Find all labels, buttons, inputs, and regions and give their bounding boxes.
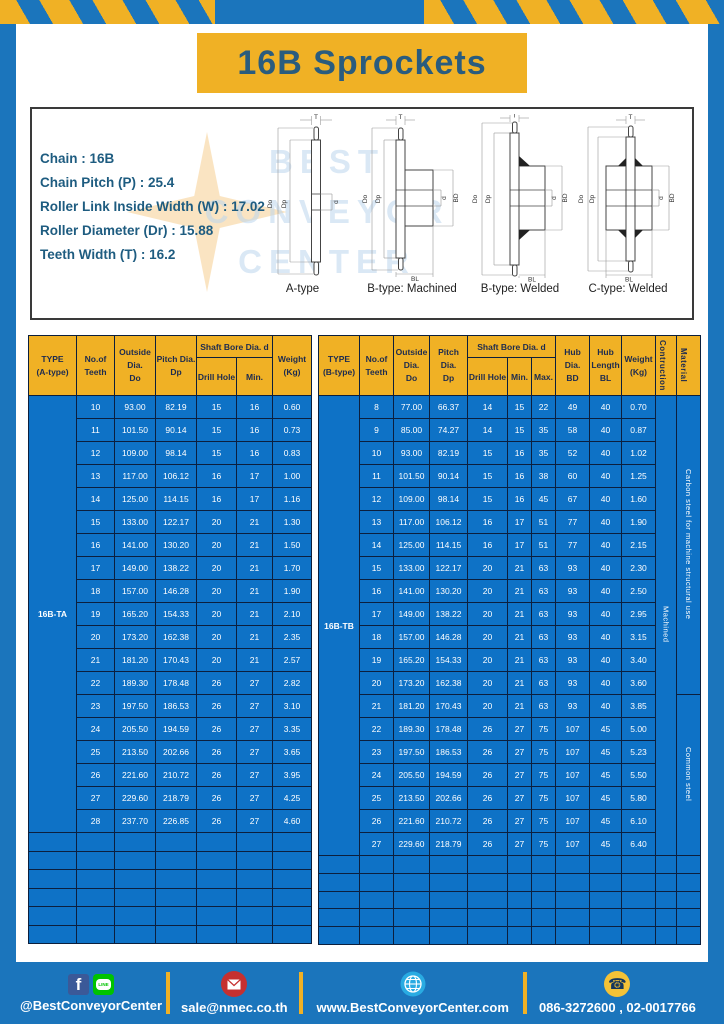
table-row: 25213.50202.66262775107455.80 [319, 787, 701, 810]
table-cell: 2.10 [273, 603, 312, 626]
table-cell: 93 [556, 557, 590, 580]
table-cell: 1.90 [273, 580, 312, 603]
table-cell: 0.87 [622, 419, 656, 442]
table-cell: 221.60 [115, 764, 156, 787]
table-cell: 63 [532, 649, 556, 672]
table-cell: 17 [508, 534, 532, 557]
table-cell: 173.20 [115, 626, 156, 649]
dim-label-d: d [551, 196, 558, 200]
dim-label-do: Do [578, 194, 585, 203]
table-cell: 19 [77, 603, 115, 626]
empty-cell [273, 907, 312, 926]
table-cell: 26 [360, 810, 394, 833]
table-cell: 93.00 [394, 442, 430, 465]
table-cell: 20 [197, 603, 237, 626]
table-cell: 16 [197, 488, 237, 511]
table-cell: 237.70 [115, 810, 156, 833]
table-cell: 26 [197, 695, 237, 718]
table-cell: 40 [590, 511, 622, 534]
table-row: 27229.60218.79262775107456.40 [319, 833, 701, 856]
footer-social-item: f LINE @BestConveyorCenter [16, 974, 166, 1013]
table-cell: 210.72 [430, 810, 468, 833]
table-cell: 0.70 [622, 396, 656, 419]
empty-cell [532, 856, 556, 874]
table-cell: 5.00 [622, 718, 656, 741]
empty-cell [394, 873, 430, 891]
empty-cell [430, 909, 468, 927]
table-cell: 16 [237, 396, 273, 419]
table-cell: 23 [77, 695, 115, 718]
table-row: 13117.00106.1216175177401.90 [319, 511, 701, 534]
table-cell: 3.95 [273, 764, 312, 787]
table-cell: 40 [590, 442, 622, 465]
empty-cell [556, 891, 590, 909]
table-cell: 21 [508, 626, 532, 649]
table-row: 21181.20170.4320216393403.85Common steel [319, 695, 701, 718]
table-cell: 6.40 [622, 833, 656, 856]
spec-line: Roller Link Inside Width (W) : 17.02 [40, 199, 265, 214]
table-cell: 21 [508, 672, 532, 695]
empty-cell [394, 927, 430, 945]
table-cell: 109.00 [394, 488, 430, 511]
table-cell: 20 [468, 557, 508, 580]
table-cell: 12 [360, 488, 394, 511]
empty-cell [468, 856, 508, 874]
empty-cell [319, 909, 360, 927]
table-cell: 26 [197, 810, 237, 833]
table-cell: 12 [77, 442, 115, 465]
table-cell: 19 [360, 649, 394, 672]
table-cell: 20 [197, 557, 237, 580]
table-cell: 20 [468, 603, 508, 626]
empty-cell [532, 927, 556, 945]
empty-cell [556, 873, 590, 891]
table-cell: 21 [360, 695, 394, 718]
col-header-outside-dia: OutsideDia.Do [394, 336, 430, 396]
diagram-caption: A-type [286, 283, 319, 295]
table-cell: 27 [508, 833, 532, 856]
empty-cell [590, 873, 622, 891]
footer-phone-item: ☎ 086-3272600 , 02-0017766 [527, 971, 708, 1015]
table-cell: 82.19 [430, 442, 468, 465]
empty-cell [656, 873, 677, 891]
table-cell: 98.14 [156, 442, 197, 465]
col-header-teeth: No.ofTeeth [360, 336, 394, 396]
table-cell: 25 [360, 787, 394, 810]
table-cell: 75 [532, 833, 556, 856]
right-border-bar [708, 0, 724, 1024]
empty-cell [677, 891, 701, 909]
footer-email-item: sale@nmec.co.th [170, 971, 299, 1015]
empty-cell [394, 891, 430, 909]
table-row: 22189.30178.48262775107455.00 [319, 718, 701, 741]
empty-cell [656, 856, 677, 874]
empty-cell [29, 888, 77, 907]
table-cell: 16 [77, 534, 115, 557]
table-cell: 2.35 [273, 626, 312, 649]
col-header-outside-dia: OutsideDia.Do [115, 336, 156, 396]
table-cell: 133.00 [115, 511, 156, 534]
empty-cell [77, 907, 115, 926]
table-row: 20173.20162.3820216393403.60 [319, 672, 701, 695]
empty-cell [29, 851, 77, 870]
table-cell: 205.50 [394, 764, 430, 787]
table-row: 14125.00114.1516175177402.15 [319, 534, 701, 557]
table-cell: 21 [508, 557, 532, 580]
table-row: 16B-TA1093.0082.1915160.60 [29, 396, 312, 419]
empty-cell [29, 833, 77, 852]
table-cell: 15 [197, 419, 237, 442]
table-cell: 178.48 [156, 672, 197, 695]
empty-cell [508, 909, 532, 927]
catalog-page: 16B Sprockets BEST CONVEYOR CENTER Chain… [0, 0, 724, 1024]
table-cell: 2.82 [273, 672, 312, 695]
table-cell: 226.85 [156, 810, 197, 833]
table-cell: 1.02 [622, 442, 656, 465]
diagram-caption: C-type: Welded [588, 283, 667, 295]
table-cell: 45 [590, 718, 622, 741]
table-cell: 1.25 [622, 465, 656, 488]
table-cell: 45 [532, 488, 556, 511]
table-cell: 35 [532, 442, 556, 465]
table-cell: 40 [590, 672, 622, 695]
table-cell: 154.33 [430, 649, 468, 672]
top-border-bar [0, 0, 724, 24]
table-cell: 51 [532, 534, 556, 557]
table-cell: 157.00 [394, 626, 430, 649]
table-cell: 205.50 [115, 718, 156, 741]
empty-cell [77, 870, 115, 889]
table-cell: 18 [77, 580, 115, 603]
table-cell: 130.20 [430, 580, 468, 603]
table-cell: 186.53 [430, 741, 468, 764]
material-cell: Carbon steel for machine structural use [677, 396, 701, 695]
empty-cell [197, 907, 237, 926]
table-cell: 93 [556, 672, 590, 695]
table-cell: 74.27 [430, 419, 468, 442]
table-cell: 93 [556, 603, 590, 626]
empty-cell [430, 873, 468, 891]
table-cell: 2.95 [622, 603, 656, 626]
table-cell: 1.00 [273, 465, 312, 488]
table-cell: 162.38 [156, 626, 197, 649]
table-cell: 154.33 [156, 603, 197, 626]
empty-cell [237, 851, 273, 870]
table-cell: 25 [77, 741, 115, 764]
email-icon [221, 971, 247, 997]
empty-cell [468, 927, 508, 945]
empty-cell [656, 927, 677, 945]
spec-diagram-box: BEST CONVEYOR CENTER Chain : 16B Chain P… [30, 107, 694, 320]
table-cell: 20 [77, 626, 115, 649]
empty-row [29, 851, 312, 870]
empty-cell [360, 927, 394, 945]
table-row: 1093.0082.1915163552401.02 [319, 442, 701, 465]
table-cell: 17 [237, 465, 273, 488]
empty-cell [29, 925, 77, 944]
table-row: 18157.00146.2820216393403.15 [319, 626, 701, 649]
table-cell: 52 [556, 442, 590, 465]
empty-cell [532, 873, 556, 891]
col-header-hub-dia: Hub Dia.BD [556, 336, 590, 396]
table-cell: 16 [237, 419, 273, 442]
col-header-weight: Weight(Kg) [622, 336, 656, 396]
table-cell: 9 [360, 419, 394, 442]
table-cell: 14 [360, 534, 394, 557]
type-b-cell: 16B-TB [319, 396, 360, 856]
table-cell: 2.15 [622, 534, 656, 557]
table-cell: 1.16 [273, 488, 312, 511]
table-cell: 67 [556, 488, 590, 511]
table-cell: 13 [360, 511, 394, 534]
dim-label-bd: BD [669, 193, 676, 202]
table-cell: 14 [468, 419, 508, 442]
empty-cell [273, 833, 312, 852]
table-cell: 93 [556, 580, 590, 603]
table-cell: 21 [508, 603, 532, 626]
empty-cell [394, 856, 430, 874]
empty-cell [590, 909, 622, 927]
table-cell: 17 [508, 511, 532, 534]
dim-label-do: Do [362, 194, 369, 203]
table-cell: 75 [532, 810, 556, 833]
col-header-construction: Contruction [656, 336, 677, 396]
table-cell: 20 [468, 626, 508, 649]
dim-label-bd: BD [562, 193, 569, 202]
empty-cell [273, 888, 312, 907]
table-cell: 77.00 [394, 396, 430, 419]
table-cell: 3.85 [622, 695, 656, 718]
table-cell: 194.59 [156, 718, 197, 741]
table-row: 23197.50186.53262775107455.23 [319, 741, 701, 764]
dim-label-t: T [314, 114, 318, 121]
table-cell: 45 [590, 833, 622, 856]
table-cell: 45 [590, 741, 622, 764]
table-cell: 27 [237, 718, 273, 741]
phone-icon: ☎ [604, 971, 630, 997]
dim-label-t: T [629, 114, 633, 121]
table-cell: 26 [197, 741, 237, 764]
table-cell: 40 [590, 488, 622, 511]
dim-label-t: T [513, 114, 517, 120]
table-cell: 117.00 [394, 511, 430, 534]
sprocket-table-a-type: TYPE(A-type) No.ofTeeth OutsideDia.Do Pi… [28, 335, 312, 944]
table-cell: 15 [77, 511, 115, 534]
table-cell: 3.10 [273, 695, 312, 718]
table-cell: 15 [508, 396, 532, 419]
table-cell: 21 [508, 580, 532, 603]
table-cell: 109.00 [115, 442, 156, 465]
table-cell: 1.30 [273, 511, 312, 534]
table-cell: 60 [556, 465, 590, 488]
empty-cell [77, 888, 115, 907]
table-cell: 35 [532, 419, 556, 442]
empty-cell [532, 891, 556, 909]
table-cell: 17 [360, 603, 394, 626]
table-cell: 27 [237, 764, 273, 787]
table-cell: 189.30 [115, 672, 156, 695]
empty-cell [156, 907, 197, 926]
table-cell: 27 [360, 833, 394, 856]
table-cell: 107 [556, 787, 590, 810]
table-cell: 20 [197, 511, 237, 534]
table-cell: 85.00 [394, 419, 430, 442]
table-cell: 63 [532, 557, 556, 580]
col-header-max: Max. [532, 358, 556, 396]
table-cell: 75 [532, 764, 556, 787]
table-cell: 26 [468, 810, 508, 833]
table-cell: 221.60 [394, 810, 430, 833]
table-cell: 2.30 [622, 557, 656, 580]
table-cell: 3.35 [273, 718, 312, 741]
empty-cell [237, 907, 273, 926]
table-cell: 20 [468, 695, 508, 718]
empty-cell [468, 873, 508, 891]
page-title: 16B Sprockets [237, 44, 486, 83]
table-cell: 229.60 [394, 833, 430, 856]
website-url: www.BestConveyorCenter.com [317, 1000, 509, 1015]
empty-cell [430, 891, 468, 909]
table-cell: 13 [77, 465, 115, 488]
social-handle: @BestConveyorCenter [20, 998, 162, 1013]
table-cell: 149.00 [115, 557, 156, 580]
table-cell: 75 [532, 718, 556, 741]
table-cell: 20 [197, 580, 237, 603]
col-header-material: Material [677, 336, 701, 396]
table-cell: 24 [360, 764, 394, 787]
col-header-pitch-dia: Pitch Dia.Dp [430, 336, 468, 396]
table-cell: 141.00 [394, 580, 430, 603]
sprocket-table-b-type: TYPE(B-type) No.ofTeeth OutsideDia.Do Pi… [318, 335, 701, 945]
empty-row [319, 873, 701, 891]
table-cell: 75 [532, 741, 556, 764]
table-cell: 2.57 [273, 649, 312, 672]
table-cell: 40 [590, 626, 622, 649]
table-cell: 5.80 [622, 787, 656, 810]
empty-row [29, 907, 312, 926]
table-cell: 186.53 [156, 695, 197, 718]
empty-cell [656, 909, 677, 927]
spec-line: Chain Pitch (P) : 25.4 [40, 175, 265, 190]
table-cell: 107 [556, 764, 590, 787]
col-header-min: Min. [508, 358, 532, 396]
table-cell: 26 [468, 833, 508, 856]
table-cell: 77 [556, 534, 590, 557]
table-cell: 5.50 [622, 764, 656, 787]
table-cell: 11 [360, 465, 394, 488]
table-cell: 3.60 [622, 672, 656, 695]
table-cell: 27 [508, 787, 532, 810]
table-cell: 40 [590, 557, 622, 580]
table-cell: 27 [508, 810, 532, 833]
table-cell: 26 [468, 787, 508, 810]
table-cell: 16 [508, 488, 532, 511]
table-cell: 162.38 [430, 672, 468, 695]
contact-footer: f LINE @BestConveyorCenter sale@nmec.co.… [0, 962, 724, 1024]
table-cell: 15 [197, 442, 237, 465]
empty-cell [508, 927, 532, 945]
table-cell: 125.00 [394, 534, 430, 557]
table-cell: 138.22 [156, 557, 197, 580]
empty-cell [360, 856, 394, 874]
empty-cell [622, 909, 656, 927]
table-cell: 170.43 [156, 649, 197, 672]
empty-cell [197, 833, 237, 852]
table-cell: 45 [590, 810, 622, 833]
empty-row [29, 888, 312, 907]
dim-label-bd: BD [453, 193, 460, 202]
table-cell: 173.20 [394, 672, 430, 695]
table-cell: 21 [77, 649, 115, 672]
table-cell: 3.40 [622, 649, 656, 672]
table-cell: 16 [508, 465, 532, 488]
empty-row [319, 856, 701, 874]
table-cell: 27 [237, 787, 273, 810]
table-cell: 90.14 [156, 419, 197, 442]
table-cell: 202.66 [430, 787, 468, 810]
table-cell: 49 [556, 396, 590, 419]
table-cell: 23 [360, 741, 394, 764]
table-row: 17149.00138.2220216393402.95 [319, 603, 701, 626]
empty-cell [677, 873, 701, 891]
empty-cell [590, 856, 622, 874]
globe-icon [400, 971, 426, 997]
table-cell: 146.28 [430, 626, 468, 649]
table-cell: 40 [590, 534, 622, 557]
table-cell: 63 [532, 672, 556, 695]
empty-cell [197, 870, 237, 889]
table-cell: 20 [468, 580, 508, 603]
table-cell: 165.20 [115, 603, 156, 626]
table-cell: 165.20 [394, 649, 430, 672]
table-cell: 122.17 [430, 557, 468, 580]
table-cell: 40 [590, 580, 622, 603]
dim-label-dp: Dp [485, 194, 492, 203]
line-icon: LINE [93, 974, 114, 995]
table-cell: 21 [237, 626, 273, 649]
table-cell: 157.00 [115, 580, 156, 603]
table-cell: 28 [77, 810, 115, 833]
table-cell: 197.50 [115, 695, 156, 718]
dim-label-d: d [658, 196, 665, 200]
table-cell: 106.12 [156, 465, 197, 488]
col-header-drill-hole: Drill Hole [197, 358, 237, 396]
table-cell: 3.65 [273, 741, 312, 764]
table-cell: 66.37 [430, 396, 468, 419]
table-cell: 4.25 [273, 787, 312, 810]
table-row: 19165.20154.3320216393403.40 [319, 649, 701, 672]
footer-website-item: www.BestConveyorCenter.com [303, 971, 523, 1015]
empty-cell [468, 891, 508, 909]
diagram-a-type: T Do Dp d A-type [260, 114, 345, 295]
empty-cell [656, 891, 677, 909]
facebook-icon: f [68, 974, 89, 995]
dim-label-bl: BL [625, 277, 633, 283]
table-cell: 22 [360, 718, 394, 741]
table-cell: 16 [197, 465, 237, 488]
col-header-pitch-dia: Pitch Dia.Dp [156, 336, 197, 396]
table-row: 11101.5090.1415163860401.25 [319, 465, 701, 488]
empty-cell [622, 873, 656, 891]
dim-label-do: Do [267, 199, 274, 208]
diagram-b-type-welded: T Do Dp d BD [470, 114, 570, 295]
empty-cell [273, 851, 312, 870]
table-cell: 14 [468, 396, 508, 419]
type-a-cell: 16B-TA [29, 396, 77, 833]
col-header-shaft-bore: Shaft Bore Dia. d [197, 336, 273, 358]
table-cell: 1.60 [622, 488, 656, 511]
table-cell: 218.79 [430, 833, 468, 856]
